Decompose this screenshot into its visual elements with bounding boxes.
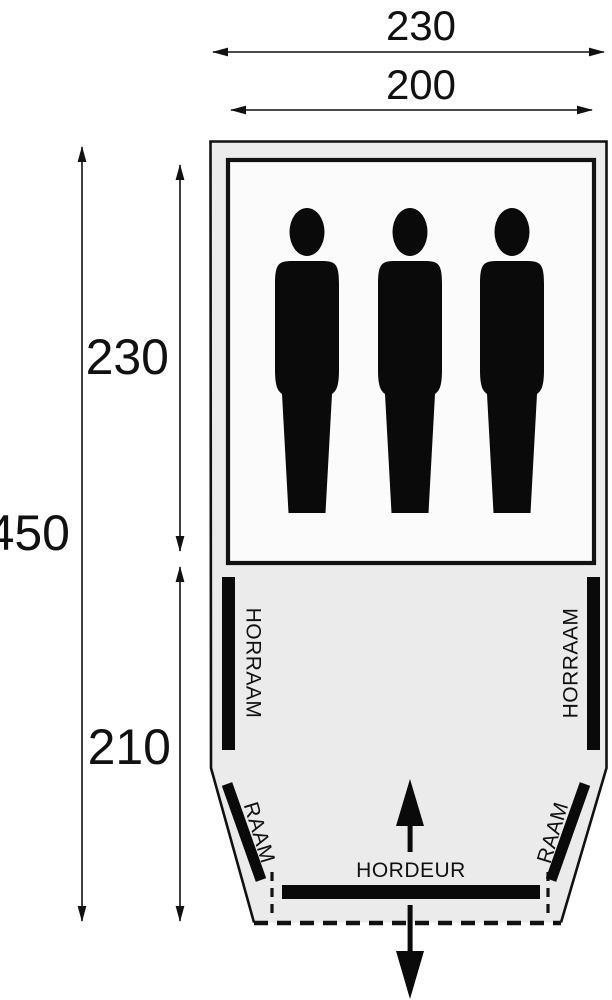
horraam-left-label: HORRAAM bbox=[241, 608, 264, 719]
horraam-right-label: HORRAAM bbox=[560, 608, 583, 719]
dim-left-total-depth: 450 bbox=[0, 505, 70, 561]
tent-floorplan-diagram: HORRAAM HORRAAM RAAM RAAM HORDEUR 230 20… bbox=[0, 0, 612, 1000]
floorplan-svg: HORRAAM HORRAAM RAAM RAAM HORDEUR 230 20… bbox=[0, 0, 612, 1000]
hordeur-label: HORDEUR bbox=[356, 859, 466, 882]
dim-top-outer-width: 230 bbox=[386, 2, 456, 49]
horraam-left-bar bbox=[222, 577, 235, 750]
dim-left-porch-depth: 210 bbox=[88, 719, 171, 775]
dim-left-cabin-depth: 230 bbox=[86, 329, 169, 385]
dim-top-inner-width: 200 bbox=[386, 61, 456, 108]
horraam-right-bar bbox=[587, 577, 600, 750]
arrow-down-icon bbox=[396, 951, 424, 999]
hordeur-bar bbox=[282, 885, 540, 899]
